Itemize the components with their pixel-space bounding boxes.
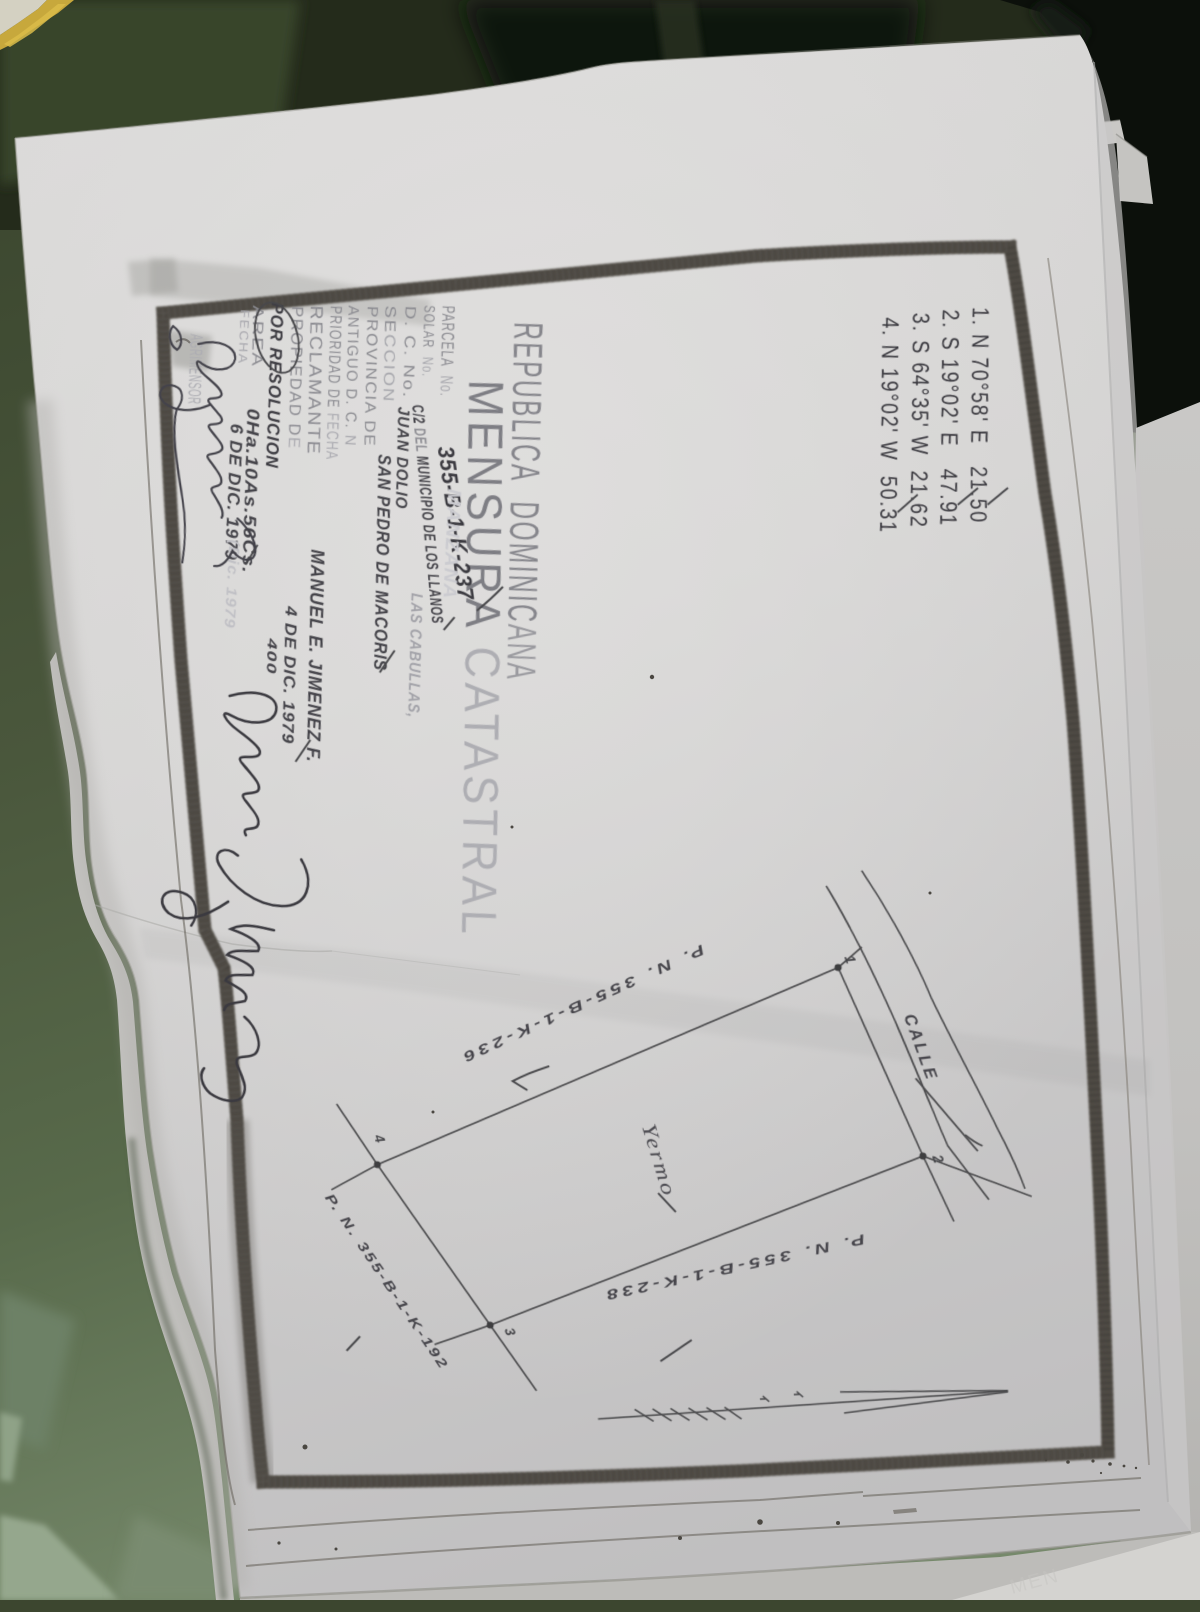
svg-text:1: 1: [841, 954, 859, 966]
svg-text:3: 3: [501, 1326, 518, 1338]
svg-text:4: 4: [370, 1132, 388, 1145]
